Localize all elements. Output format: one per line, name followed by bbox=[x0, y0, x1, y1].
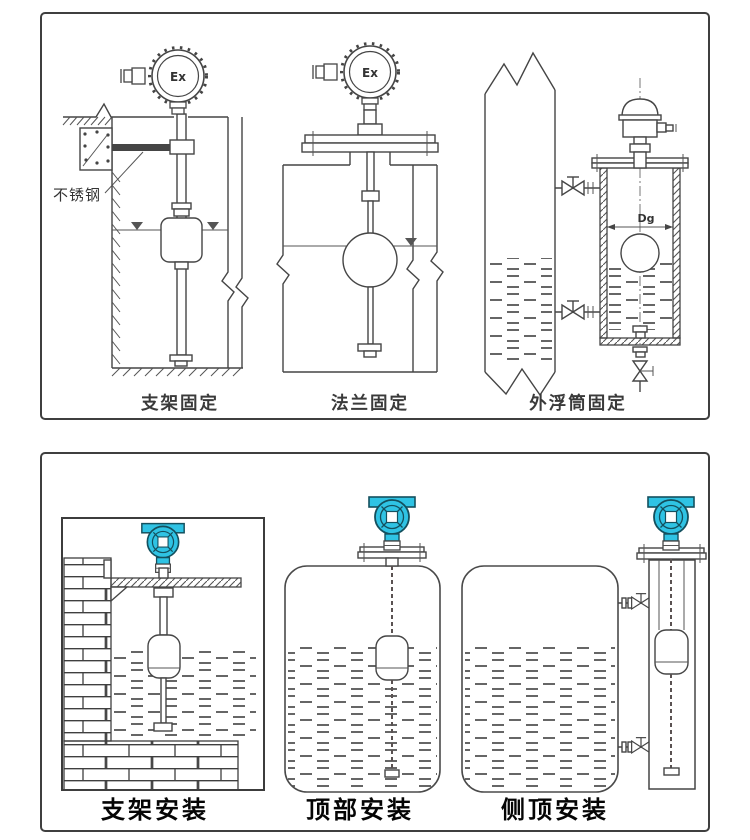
brick-wall bbox=[64, 558, 111, 741]
brick-floor bbox=[64, 741, 238, 790]
float bbox=[161, 218, 202, 269]
diameter-dimension: Dg bbox=[607, 212, 673, 230]
tank-liquid bbox=[488, 258, 552, 364]
material-label: 不锈钢 bbox=[53, 186, 101, 204]
diagram-side-top-installation bbox=[455, 494, 705, 799]
transmitter-head bbox=[648, 497, 694, 550]
isolation-valve-icon bbox=[562, 301, 584, 319]
ex-label: Ex bbox=[362, 66, 378, 80]
rod-stop bbox=[385, 770, 399, 777]
caption-external-chamber-fixing: 外浮筒固定 bbox=[486, 392, 670, 414]
diagram-top-installation bbox=[280, 494, 465, 799]
caption-top-installation: 顶部安装 bbox=[280, 796, 440, 826]
caption-side-top-installation: 侧顶安装 bbox=[475, 796, 635, 826]
drain-valve bbox=[633, 347, 653, 392]
top-panel-fixing-methods: Ex 不锈钢 Ex bbox=[40, 12, 710, 420]
diameter-label: Dg bbox=[637, 212, 654, 225]
level-mark-icon bbox=[405, 238, 417, 246]
caption-bracket-fixing: 支架固定 bbox=[108, 392, 252, 414]
float bbox=[376, 636, 408, 680]
liquid bbox=[288, 646, 437, 788]
rod-stop bbox=[664, 768, 679, 775]
caption-bracket-installation: 支架安装 bbox=[75, 796, 235, 826]
rod-couplings bbox=[633, 326, 647, 338]
upper-valve-pipe bbox=[618, 594, 650, 609]
connecting-pipes bbox=[555, 177, 600, 319]
liquid bbox=[465, 644, 615, 788]
float bbox=[148, 635, 180, 678]
sensor-rod bbox=[362, 152, 379, 234]
transmitter-head-ex: Ex bbox=[121, 48, 207, 115]
liquid bbox=[111, 650, 256, 741]
level-mark-icon bbox=[207, 222, 219, 230]
level-mark-icon bbox=[131, 222, 143, 230]
caption-flange-fixing: 法兰固定 bbox=[298, 392, 442, 414]
float bbox=[655, 630, 688, 674]
diagram-bracket-installation bbox=[60, 504, 280, 799]
ex-label: Ex bbox=[170, 70, 186, 84]
diagram-external-chamber-fixing: Dg bbox=[470, 20, 710, 400]
diagram-flange-fixing: Ex bbox=[265, 20, 475, 400]
isolation-valve-icon bbox=[562, 177, 584, 195]
diagram-bracket-fixing: Ex 不锈钢 bbox=[50, 20, 270, 400]
lower-valve-pipe bbox=[618, 738, 650, 753]
float bbox=[343, 233, 397, 287]
bottom-panel-installation-methods: 支架安装 顶部安装 侧顶安装 bbox=[40, 452, 710, 832]
valve-icon bbox=[632, 594, 651, 609]
float bbox=[621, 234, 659, 272]
transmitter-head bbox=[369, 497, 415, 550]
sensor-rod-lower bbox=[358, 287, 381, 357]
transmitter-head-ex: Ex bbox=[313, 44, 399, 136]
valve-icon bbox=[632, 738, 651, 753]
